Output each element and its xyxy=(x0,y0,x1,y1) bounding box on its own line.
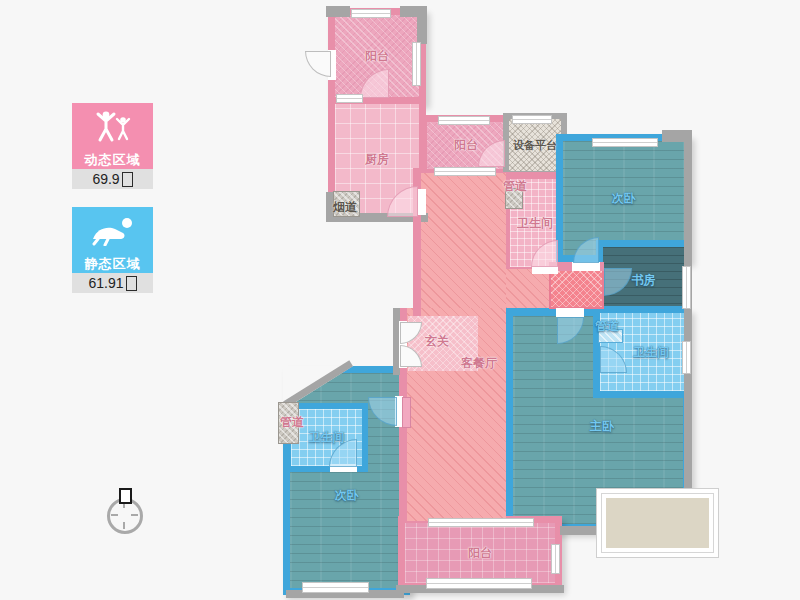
dynamic-area-label: 动态区域 xyxy=(85,151,141,169)
window xyxy=(551,544,560,574)
window xyxy=(412,42,421,86)
room-label-study: 书房 xyxy=(632,272,656,289)
static-area-label: 静态区域 xyxy=(85,255,141,273)
ac-platform xyxy=(596,488,719,558)
room-label-master-bedroom: 主卧 xyxy=(590,418,614,435)
static-area-chip[interactable]: 静态区域 xyxy=(72,207,153,279)
window xyxy=(592,138,658,147)
window xyxy=(682,266,691,309)
room-label-kitchen: 厨房 xyxy=(365,151,389,168)
dynamic-area-chip[interactable]: 动态区域 xyxy=(72,103,153,175)
static-area-value: 61.91 xyxy=(72,273,153,293)
window xyxy=(336,94,363,103)
room-label-pipe-east: 管道 xyxy=(595,318,619,335)
north-indicator xyxy=(119,488,132,504)
static-person-icon xyxy=(72,214,153,246)
room-label-bath-north: 卫生间 xyxy=(517,215,553,232)
door-leaf xyxy=(402,397,411,428)
room-label-equipment-platform: 设备平台 xyxy=(513,138,557,153)
room-label-pipe-west: 管道 xyxy=(280,414,304,431)
compass xyxy=(104,486,148,534)
dynamic-people-icon xyxy=(72,110,153,144)
room-label-bath-east: 卫生间 xyxy=(633,344,669,361)
room-label-balcony-south: 阳台 xyxy=(468,545,492,562)
room-label-pipe-north: 管道 xyxy=(503,178,527,195)
room-label-bath-west: 卫生间 xyxy=(309,429,345,446)
room-label-bedroom-northeast: 次卧 xyxy=(612,190,636,207)
window xyxy=(438,116,490,125)
room-label-living-dining: 客餐厅 xyxy=(461,355,497,372)
dynamic-area-value: 69.9 xyxy=(72,169,153,189)
window xyxy=(682,341,691,374)
corridor-hatch-block xyxy=(549,269,604,309)
window xyxy=(351,9,391,18)
room-label-balcony-mid: 阳台 xyxy=(454,137,478,154)
window xyxy=(434,167,496,176)
room-label-foyer: 玄关 xyxy=(425,333,449,350)
room-label-bedroom-southwest: 次卧 xyxy=(335,487,359,504)
floorplan-canvas: 动态区域 69.9 静态区域 61.91 xyxy=(0,0,800,600)
window xyxy=(426,578,532,589)
outer-wall-east xyxy=(684,134,692,534)
window xyxy=(428,518,534,527)
missing-glyph-box xyxy=(126,276,137,291)
door-arc-balcony-exterior xyxy=(305,51,331,77)
room-label-balcony-north: 阳台 xyxy=(365,48,389,65)
window xyxy=(512,115,552,124)
room-living-dining xyxy=(420,173,506,308)
window xyxy=(302,582,369,593)
room-label-flue: 烟道 xyxy=(333,199,357,216)
missing-glyph-box xyxy=(122,172,133,187)
